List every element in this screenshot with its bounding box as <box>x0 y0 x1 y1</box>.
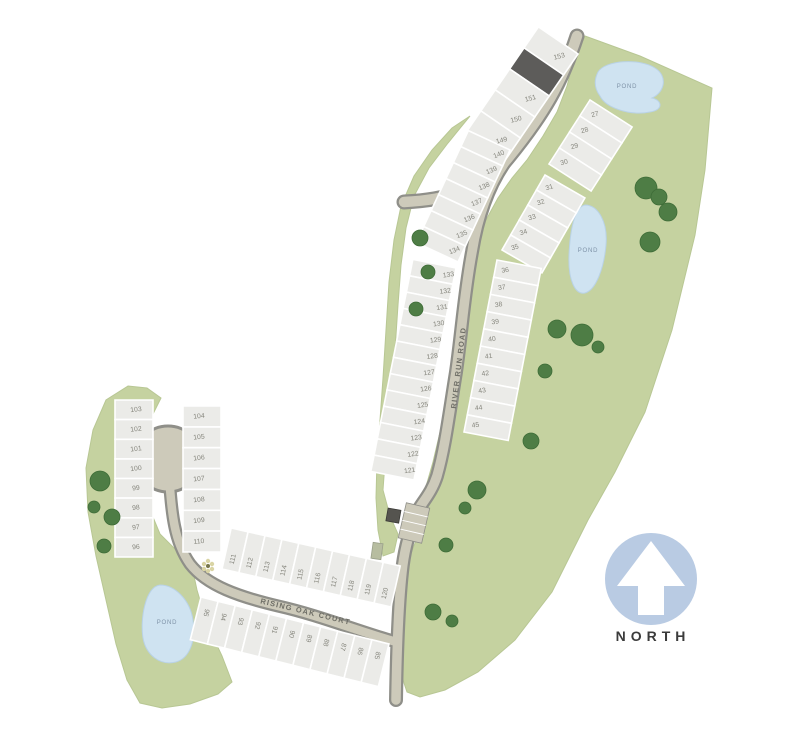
tree-icon <box>640 232 660 252</box>
lot-number: 39 <box>491 318 500 326</box>
lot-number: 97 <box>132 524 140 532</box>
lot-number: 44 <box>475 404 484 412</box>
tree-icon <box>459 502 471 514</box>
tree-icon <box>548 320 566 338</box>
lot-number: 102 <box>130 426 142 434</box>
tree-icon <box>571 324 593 346</box>
lot-number: 36 <box>501 267 510 275</box>
lot-number: 40 <box>488 336 497 344</box>
lot-strip-culdesac-east: 104105106107108109110 <box>183 406 221 552</box>
tree-icon <box>592 341 604 353</box>
lot-number: 96 <box>132 544 140 552</box>
north-arrow: NORTH <box>605 533 697 644</box>
site-plan-page: 1531511501492728293031323334353637383940… <box>0 0 800 747</box>
lot-number: 103 <box>130 406 142 414</box>
tree-icon <box>468 481 486 499</box>
tree-icon <box>421 265 435 279</box>
lot-number: 98 <box>132 504 140 512</box>
pond-north-label: POND <box>617 84 638 90</box>
lot-number: 99 <box>132 485 140 493</box>
lot-number: 107 <box>193 475 205 483</box>
tree-icon <box>425 604 441 620</box>
lot-number: 108 <box>193 496 205 504</box>
lot-strip-culdesac-west: 10310210110099989796 <box>115 400 153 557</box>
tree-icon <box>409 302 423 316</box>
tree-icon <box>651 189 667 205</box>
tree-icon <box>104 509 120 525</box>
pond-east-label: POND <box>578 248 599 254</box>
lot-number: 101 <box>130 445 142 453</box>
mail-kiosk-icon <box>386 508 401 523</box>
tree-icon <box>523 433 539 449</box>
tree-icon <box>538 364 552 378</box>
tree-icon <box>659 203 677 221</box>
tree-icon <box>88 501 100 513</box>
pond-southwest-label: POND <box>157 620 178 626</box>
site-plan-map: 1531511501492728293031323334353637383940… <box>0 0 800 747</box>
landscape-rosette-icon <box>202 559 214 573</box>
lot-number: 106 <box>193 454 205 462</box>
lot-number: 41 <box>485 353 494 361</box>
lot-number: 105 <box>193 433 205 441</box>
tree-icon <box>97 539 111 553</box>
lot-number: 38 <box>494 301 503 309</box>
lot-number: 110 <box>193 538 205 546</box>
tree-icon <box>446 615 458 627</box>
sign-pad-icon <box>371 542 383 559</box>
lot-number: 42 <box>481 370 490 378</box>
tree-icon <box>412 230 428 246</box>
lot-number: 104 <box>193 413 205 421</box>
north-arrow-text: NORTH <box>616 628 691 644</box>
lot-number: 37 <box>498 284 507 292</box>
lot-number: 109 <box>193 517 205 525</box>
lot-number: 100 <box>130 465 142 473</box>
tree-icon <box>90 471 110 491</box>
lot-number: 43 <box>478 387 487 395</box>
tree-icon <box>439 538 453 552</box>
lot-number: 45 <box>471 422 480 430</box>
